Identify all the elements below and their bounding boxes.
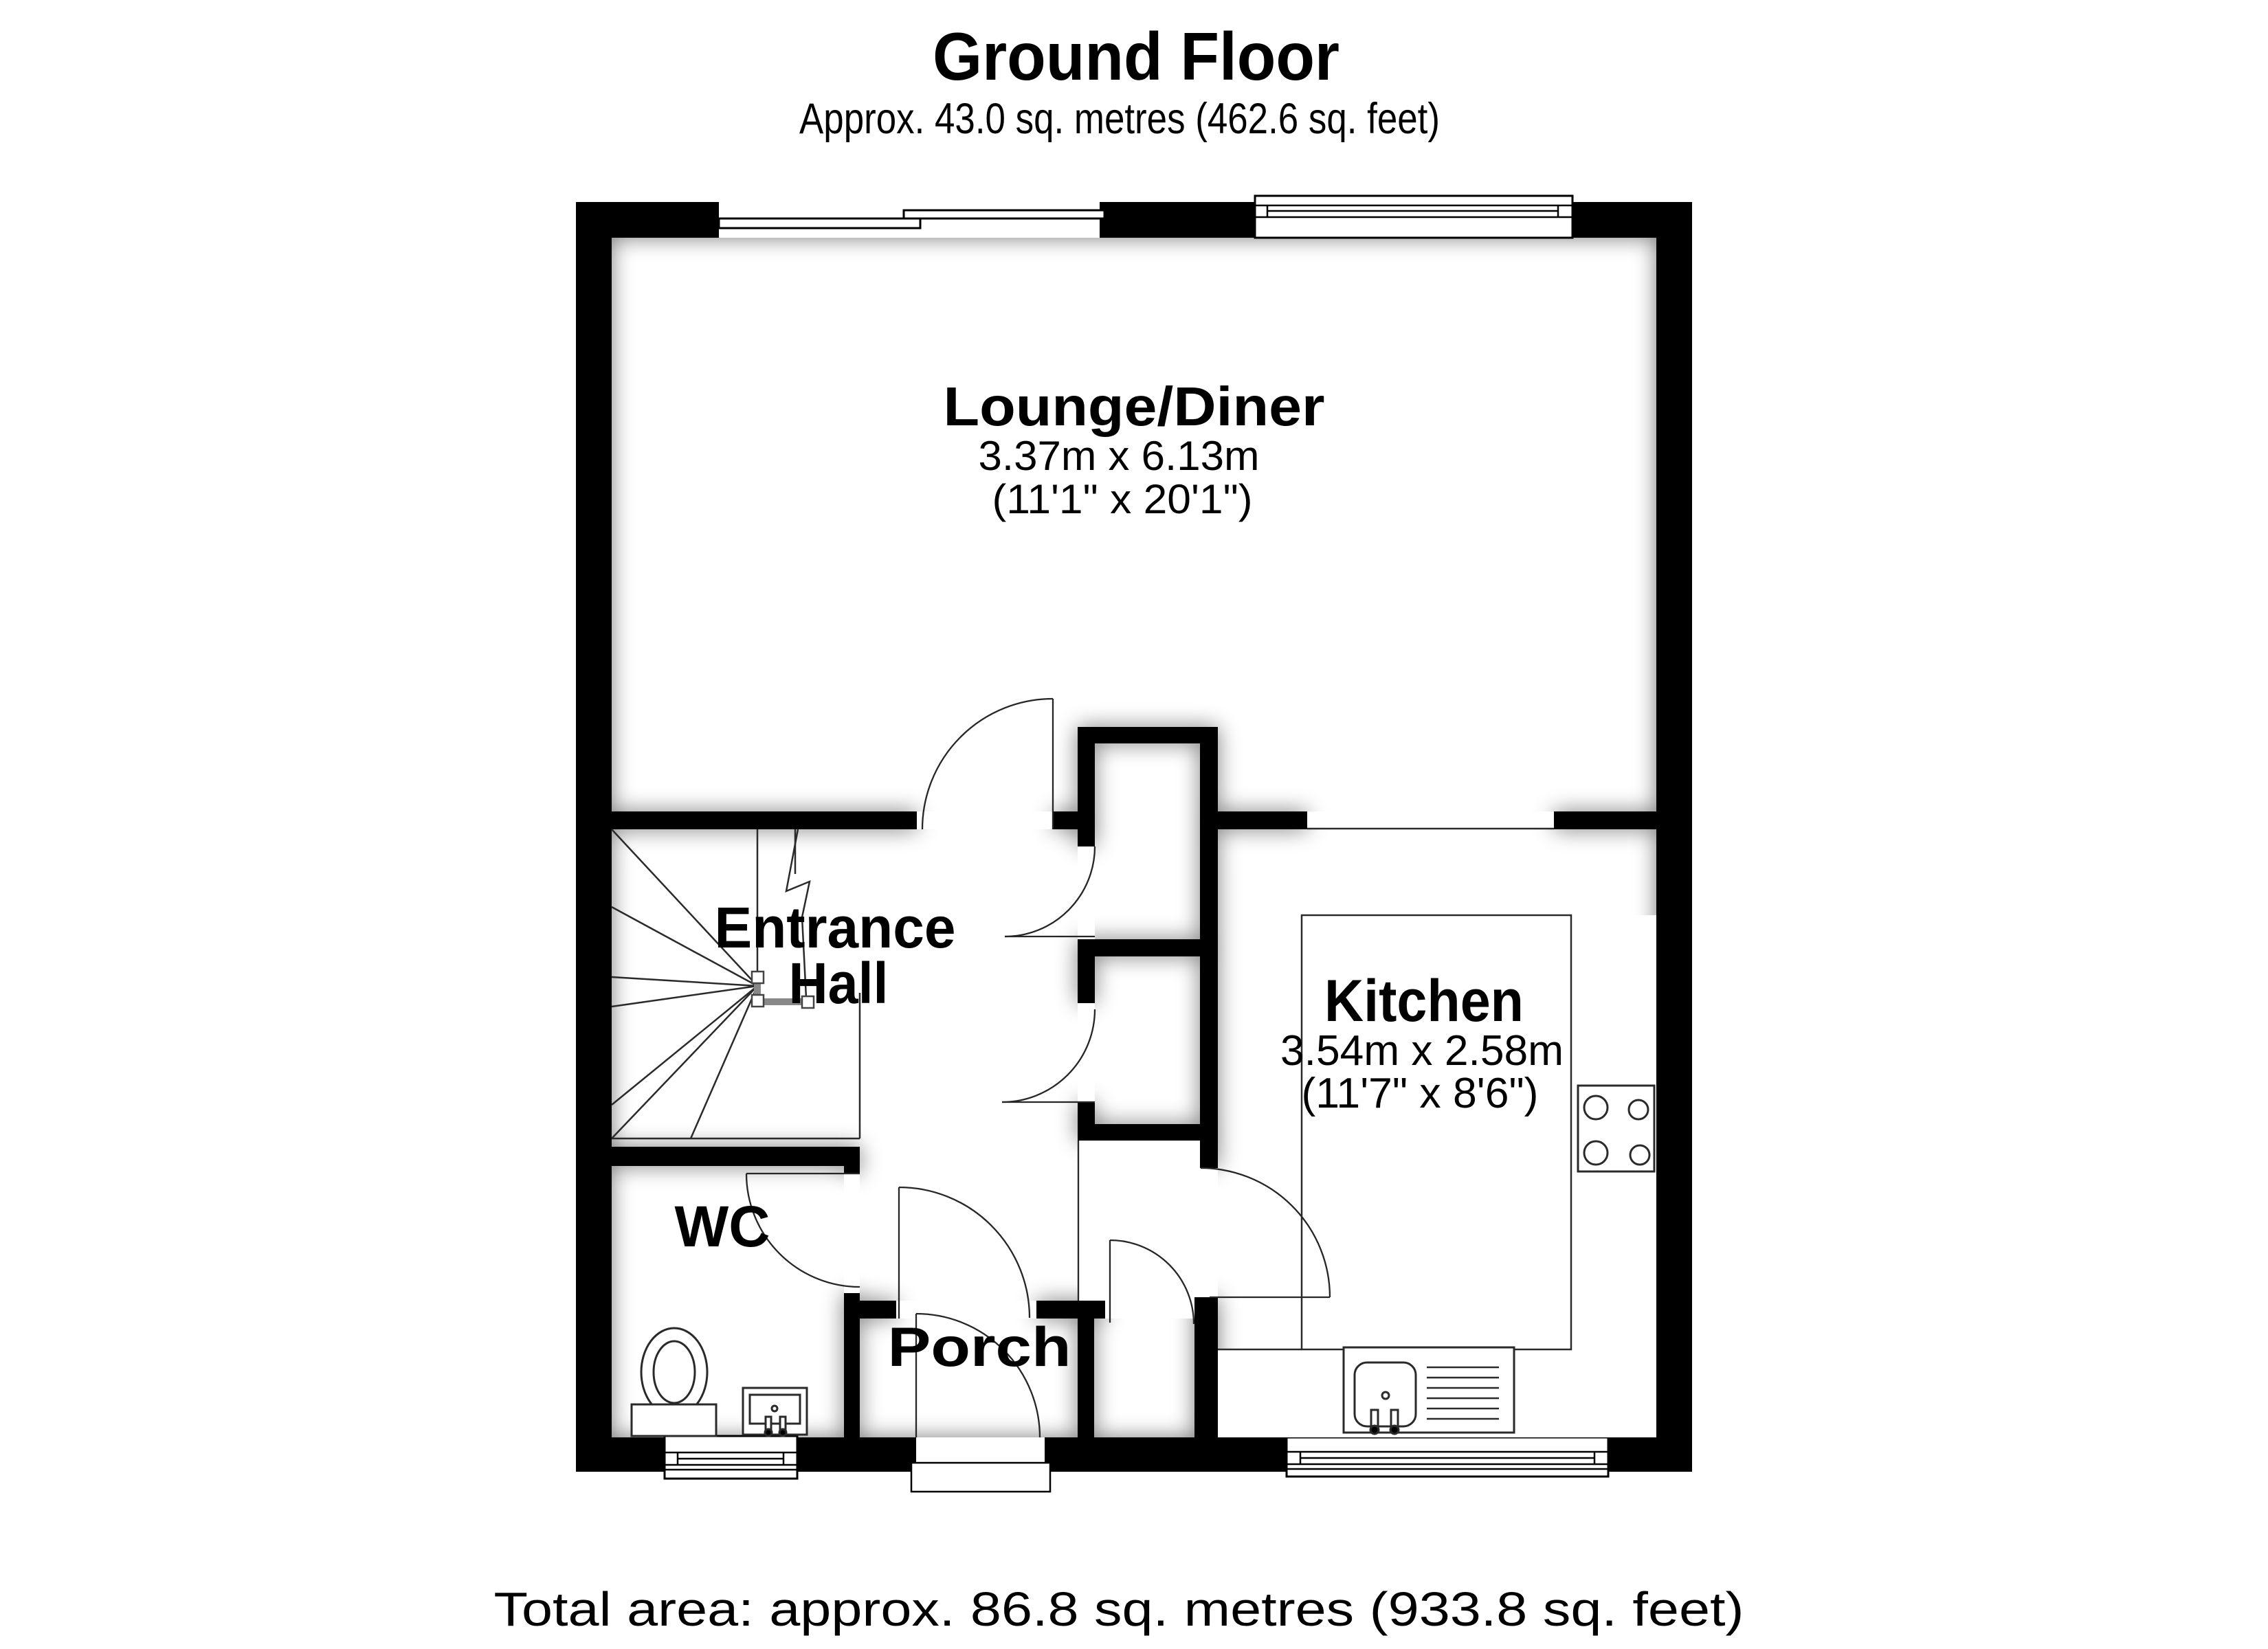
svg-text:Approx. 43.0 sq. metres (462.6: Approx. 43.0 sq. metres (462.6 sq. feet) xyxy=(799,95,1440,143)
svg-text:Ground Floor: Ground Floor xyxy=(933,19,1339,94)
svg-text:(11'1" x 20'1"): (11'1" x 20'1") xyxy=(992,476,1253,522)
svg-text:3.54m x 2.58m: 3.54m x 2.58m xyxy=(1280,1027,1564,1075)
svg-text:Porch: Porch xyxy=(888,1316,1071,1378)
svg-text:Hall: Hall xyxy=(789,951,889,1016)
svg-text:WC: WC xyxy=(675,1194,770,1259)
svg-text:3.37m x 6.13m: 3.37m x 6.13m xyxy=(979,433,1260,479)
svg-text:(11'7" x 8'6"): (11'7" x 8'6") xyxy=(1302,1070,1539,1117)
svg-text:Entrance: Entrance xyxy=(715,895,956,960)
svg-text:Kitchen: Kitchen xyxy=(1324,968,1524,1034)
svg-text:Lounge/Diner: Lounge/Diner xyxy=(944,376,1325,437)
svg-text:Total area: approx. 86.8 sq. m: Total area: approx. 86.8 sq. metres (933… xyxy=(494,1582,1744,1636)
